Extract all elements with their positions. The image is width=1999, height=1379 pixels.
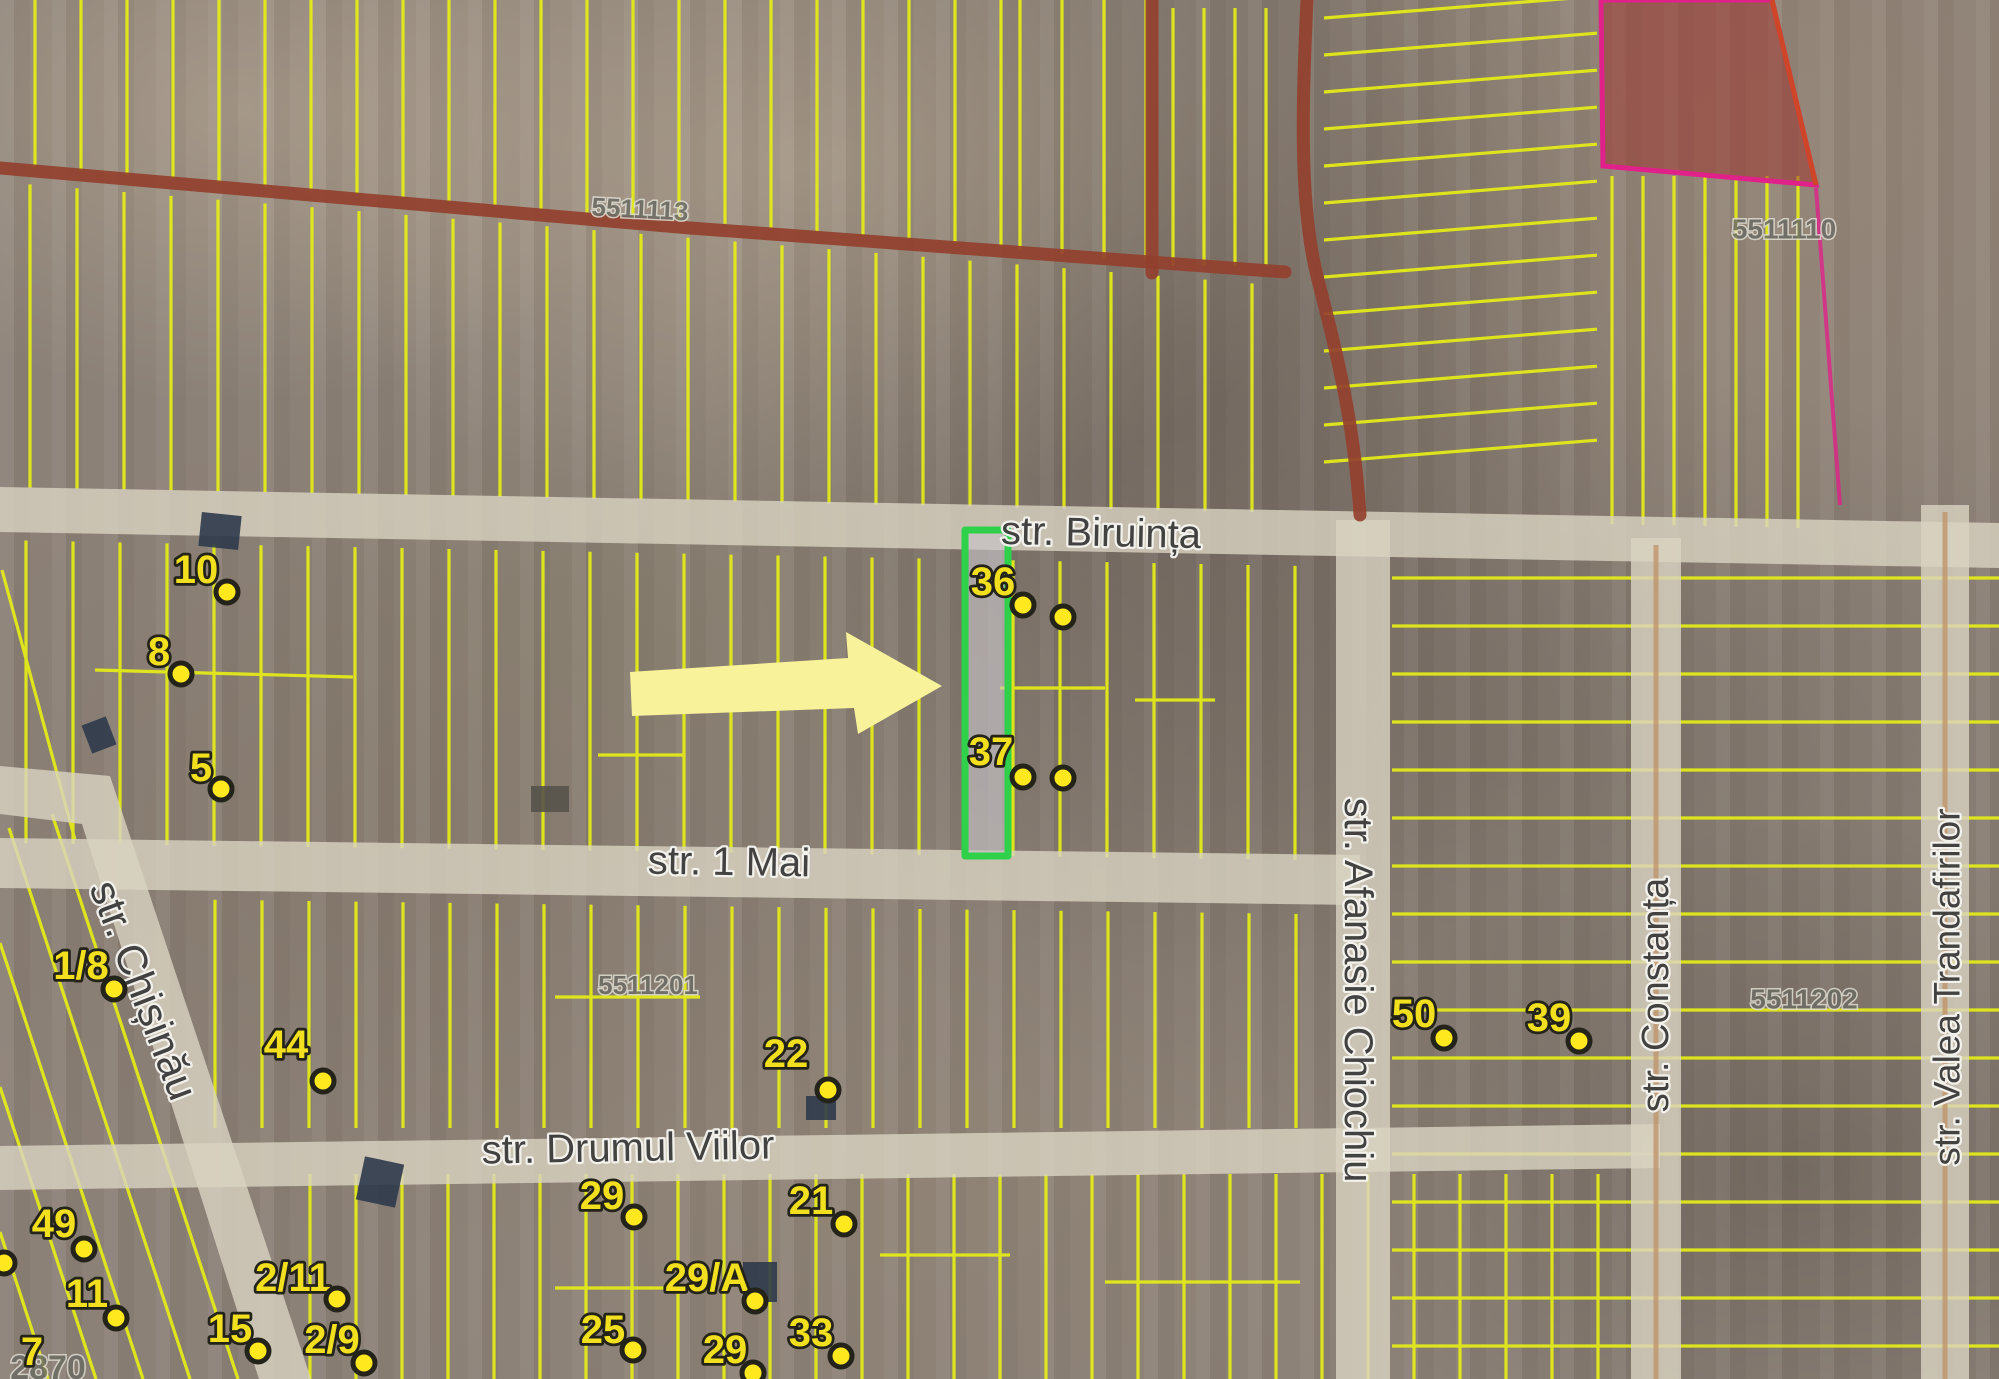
brown-road-north [1303,0,1360,515]
parcel-line [95,670,353,677]
street-label-drumul-viilor: str. Drumul Viilor [481,1123,774,1172]
street-label-afanasie-chiochiu: str. Afanasie Chiochiu [1336,798,1380,1183]
lot-marker-dot[interactable] [1568,1030,1590,1052]
lot-marker-dot[interactable] [105,1307,127,1329]
street-label-valea-trandafirilor: str. Valea Trandafirilor [1927,808,1968,1165]
lot-marker-label[interactable]: 2/9 [304,1318,360,1362]
lot-marker-dot[interactable] [1052,606,1074,628]
lot-marker-dot[interactable] [210,778,232,800]
lot-marker-dot[interactable] [1052,767,1074,789]
lot-marker-label[interactable]: 2/11 [255,1256,331,1300]
red-zone [1601,0,1840,505]
parcel-line [1324,0,1597,18]
parcel-line [1324,255,1597,277]
lot-marker-label[interactable]: 29 [703,1328,748,1372]
lot-marker-label[interactable]: 33 [789,1311,834,1355]
lot-marker-label[interactable]: 8 [148,630,170,674]
lot-marker-dot[interactable] [247,1340,269,1362]
parcel-line [1324,218,1597,240]
lot-marker-dot[interactable] [0,1252,15,1274]
lot-marker-label[interactable]: 37 [969,730,1014,774]
lot-marker-dot[interactable] [353,1352,375,1374]
cadastral-label-5511201: 5511201 [598,970,698,1000]
lot-marker-label[interactable]: 10 [174,548,219,592]
parcel-line [1324,292,1597,314]
lot-marker-label[interactable]: 49 [32,1202,77,1246]
street-label-biruinta: str. Biruința [1001,509,1203,557]
lot-marker-label[interactable]: 21 [789,1179,834,1223]
lot-marker-dot[interactable] [830,1345,852,1367]
parcel-line [1324,144,1597,166]
lot-marker-dot[interactable] [1433,1027,1455,1049]
lot-marker-dot[interactable] [622,1339,644,1361]
lot-marker-dot[interactable] [833,1213,855,1235]
lot-marker-dot[interactable] [1012,594,1034,616]
annotation-arrow [630,632,942,734]
lot-marker-dot[interactable] [817,1079,839,1101]
lot-marker-dot[interactable] [1012,766,1034,788]
lot-marker-dot[interactable] [170,663,192,685]
street-label-1mai: str. 1 Mai [647,839,810,886]
lot-marker-dot[interactable] [73,1238,95,1260]
parcel-line [1324,33,1597,55]
lot-marker-dot[interactable] [742,1362,764,1379]
parcel-line [1324,329,1597,351]
lot-marker-dot[interactable] [623,1206,645,1228]
street-label-constanta: str. Constanța [1635,877,1677,1112]
cadastral-map-view: str. Biruințastr. 1 Maistr. Drumul Viilo… [0,0,1999,1379]
cadastral-label-5511110: 5511110 [1732,214,1836,245]
parcel-line [1324,366,1597,388]
lot-marker-dot[interactable] [744,1290,766,1312]
parcel-line [1324,440,1597,462]
parcel-line [1324,403,1597,425]
building [531,786,569,812]
map-canvas[interactable]: str. Biruințastr. 1 Maistr. Drumul Viilo… [0,0,1999,1379]
lot-marker-label[interactable]: 15 [208,1307,253,1351]
parcel-line [1324,107,1597,129]
lot-marker-label[interactable]: 1/8 [53,944,109,988]
cadastral-label-5511113: 5511113 [591,191,689,226]
lot-marker-dot[interactable] [216,581,238,603]
building [81,716,116,753]
lot-marker-label[interactable]: 29 [580,1174,625,1218]
cadastral-label-5511202: 5511202 [1750,984,1857,1015]
parcel-line [1324,70,1597,92]
red-zone-polygon [1601,0,1816,185]
lot-marker-label[interactable]: 44 [264,1023,309,1067]
lot-marker-label[interactable]: 39 [1527,996,1572,1040]
lot-marker-label[interactable]: 25 [581,1308,626,1352]
lot-marker-label[interactable]: 7 [21,1330,43,1374]
parcel-line [1324,181,1597,203]
lot-marker-label[interactable]: 29/A [665,1256,750,1300]
lot-marker-label[interactable]: 22 [764,1032,809,1076]
lot-marker-dot[interactable] [103,978,125,1000]
lot-marker-label[interactable]: 36 [971,560,1016,604]
lot-marker-dot[interactable] [326,1288,348,1310]
lot-marker-label[interactable]: 11 [66,1272,108,1316]
lot-marker-label[interactable]: 50 [1392,992,1437,1036]
lot-marker-dot[interactable] [312,1070,334,1092]
building [198,512,241,550]
